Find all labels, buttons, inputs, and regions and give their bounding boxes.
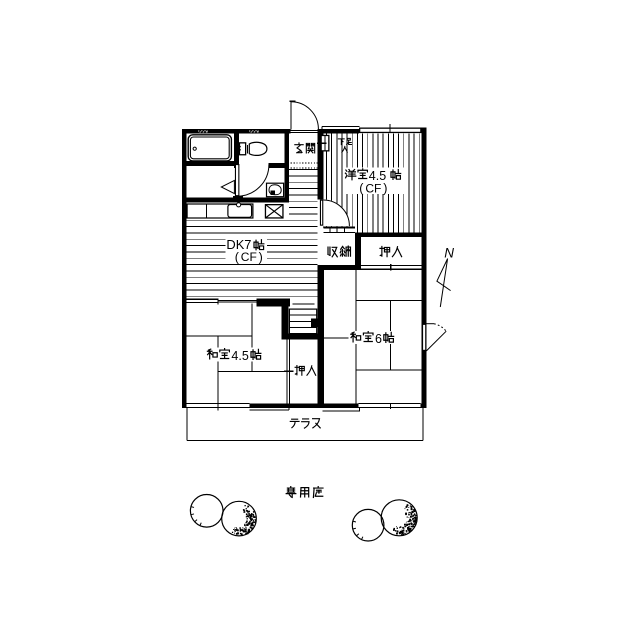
svg-text:CF: CF bbox=[365, 181, 381, 195]
svg-text:): ) bbox=[259, 251, 263, 265]
svg-text:4.5: 4.5 bbox=[231, 349, 248, 363]
svg-text:6: 6 bbox=[375, 332, 382, 346]
svg-text:N: N bbox=[444, 246, 454, 261]
svg-text:): ) bbox=[383, 182, 387, 196]
svg-text:CF: CF bbox=[241, 250, 257, 264]
